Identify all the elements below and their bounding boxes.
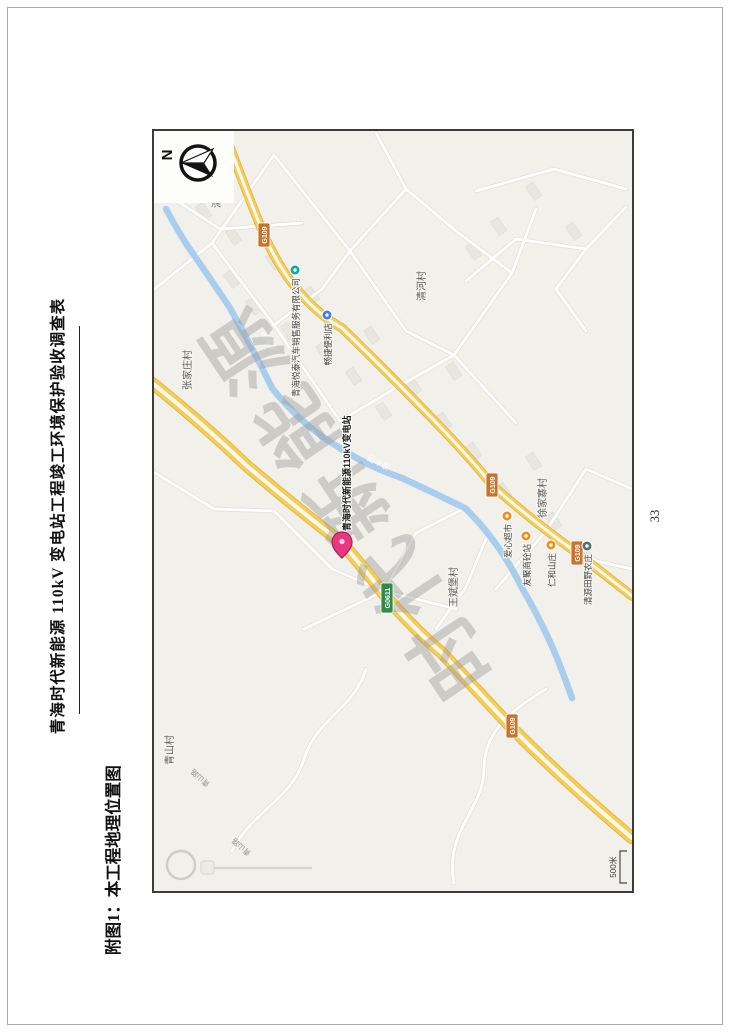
shield-code: G109 <box>510 717 517 734</box>
poi-icon-dot <box>505 514 508 517</box>
shield-code: G109 <box>262 226 269 243</box>
shield-code: G109 <box>575 544 582 561</box>
poi-icon-dot <box>585 544 588 547</box>
road-shield: G109 <box>571 541 583 565</box>
document-page: 青海时代新能源 110kV 变电站工程竣工环境保护验收调查表 附图1：本工程地理… <box>0 0 730 1032</box>
poi-icon-dot <box>325 313 328 316</box>
poi-resort: 仁和山庄 <box>546 540 557 587</box>
page-title: 青海时代新能源 110kV 变电站工程竣工环境保护验收调查表 <box>46 0 68 1032</box>
poi-label: 畅捷便利店 <box>323 323 333 366</box>
poi-car-dealer: 青海悦泰汽车销售服务有限公司 <box>290 265 301 397</box>
poi-label: 友聚商砼站 <box>522 544 532 587</box>
poi-icon-dot <box>293 268 296 271</box>
site-pin-label: 青海时代新能源110kV变电站 <box>341 415 352 531</box>
figure-caption: 附图1：本工程地理位置图 <box>100 765 124 955</box>
shield-code: G0611 <box>385 588 392 609</box>
poi-concrete-station: 友聚商砼站 <box>521 531 532 587</box>
village-label: 王斌堡村 <box>447 567 460 607</box>
shield-code: G109 <box>490 476 497 493</box>
poi-label: 仁和山庄 <box>547 553 557 588</box>
expressway-shield: G0611 <box>381 583 393 613</box>
poi-supermarket: 爱心超市 <box>502 511 513 558</box>
poi-icon-dot <box>524 534 527 537</box>
road-shield: G109 <box>506 714 518 738</box>
header-rule <box>79 326 80 714</box>
village-label: 青山村 <box>163 735 176 765</box>
road-shield: G109 <box>486 473 498 497</box>
poi-label: 青海悦泰汽车销售服务有限公司 <box>291 278 301 397</box>
scale-label: 500米 <box>608 856 618 877</box>
poi-label: 爱心超市 <box>503 524 513 559</box>
poi-label: 清源田野农庄 <box>583 554 593 606</box>
road-shield: G109 <box>258 223 270 247</box>
page-number: 33 <box>648 0 663 1032</box>
zoom-slider-handle <box>201 861 214 874</box>
poi-icon-dot <box>549 543 552 546</box>
poi-convenience-store: 畅捷便利店 <box>322 310 333 366</box>
village-label: 清河村 <box>415 271 428 301</box>
compass: N <box>154 131 234 203</box>
village-label: 张家庄村 <box>181 350 194 390</box>
rotated-landscape-sheet: 青海时代新能源 110kV 变电站工程竣工环境保护验收调查表 附图1：本工程地理… <box>0 0 730 1032</box>
map-figure: 湟水河 湟水河 青山路 青山路 时代新能源 G109 G109 <box>152 129 634 893</box>
village-label: 徐家寨村 <box>536 478 549 518</box>
map-svg: 湟水河 湟水河 青山路 青山路 时代新能源 G109 G109 <box>154 131 632 891</box>
north-label: N <box>159 150 176 161</box>
